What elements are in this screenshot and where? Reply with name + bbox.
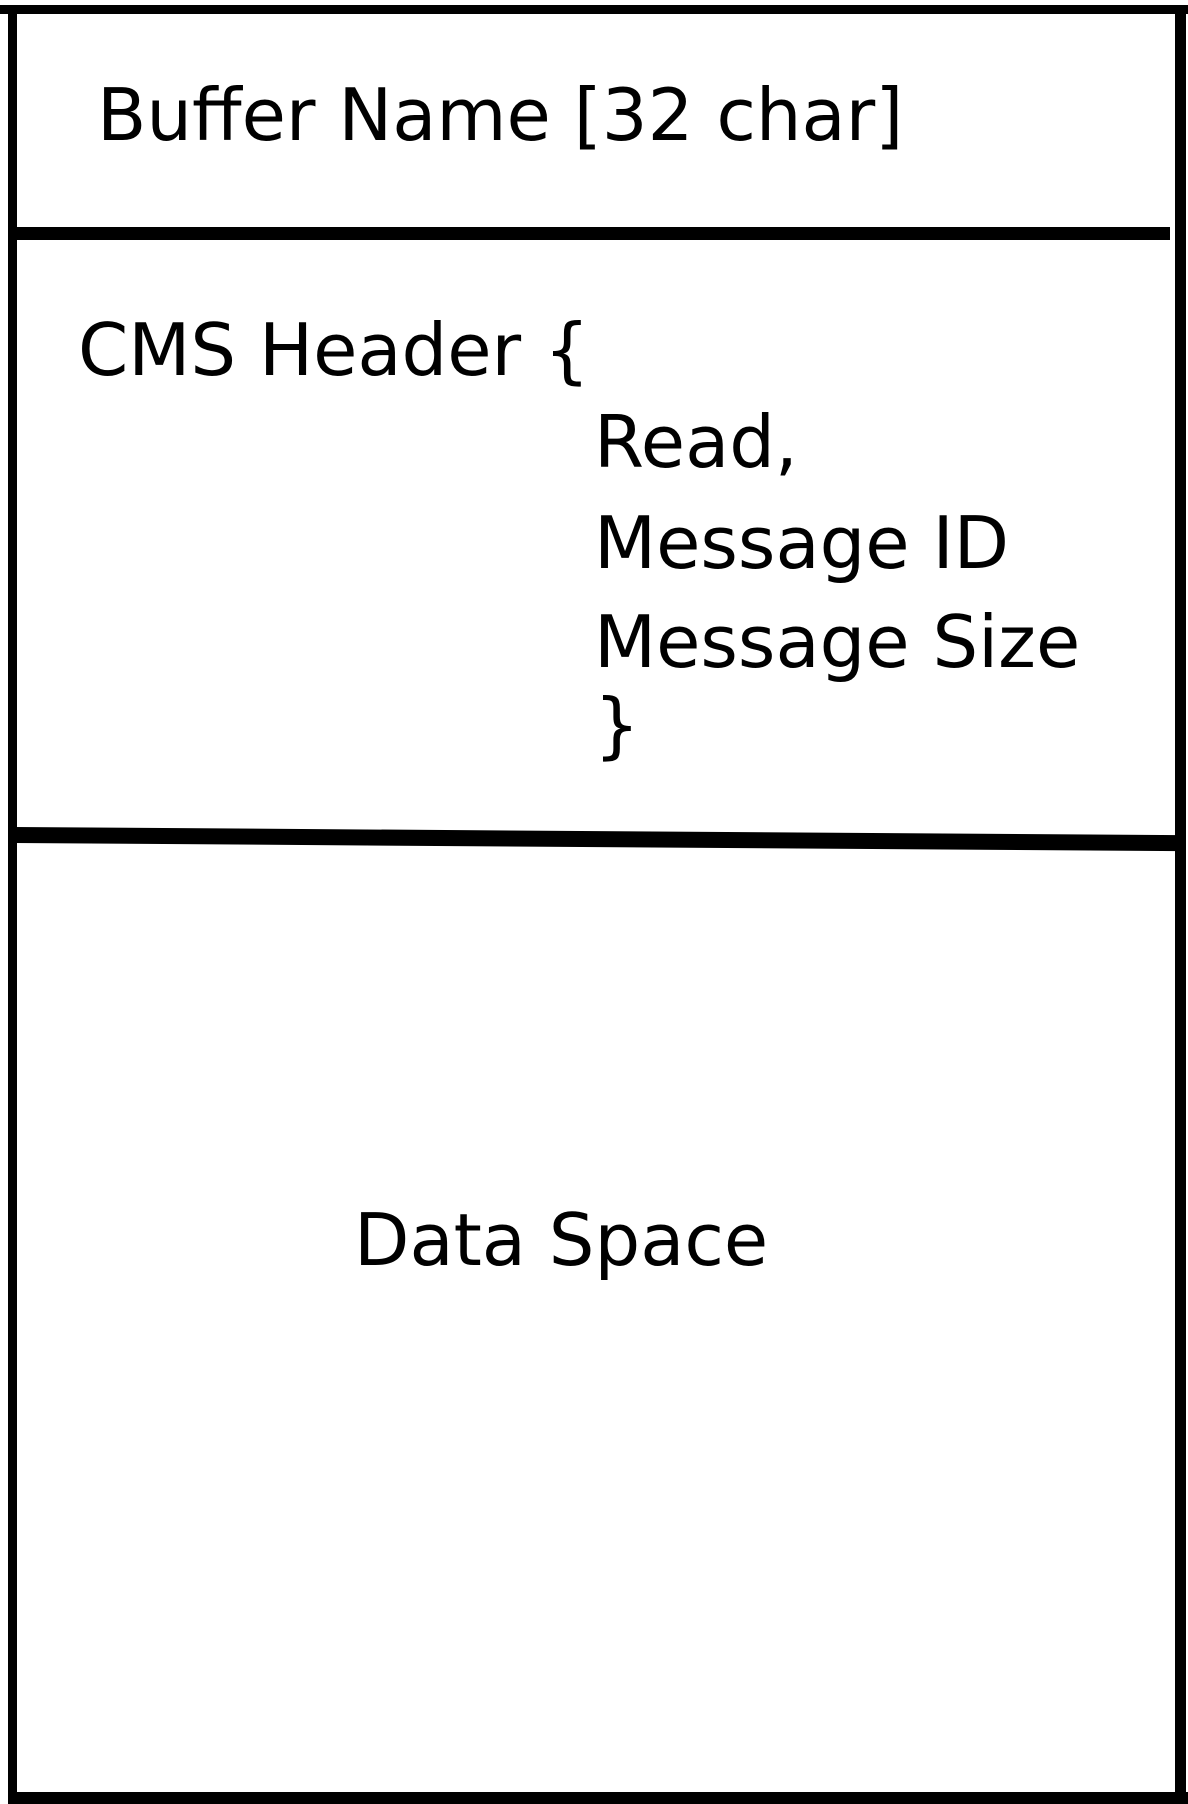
frame-top-edge [0, 5, 1188, 14]
cms-field-message-size: Message Size [594, 606, 1080, 678]
cms-field-message-id: Message ID [594, 507, 1009, 579]
frame-right-edge [1175, 12, 1186, 1804]
cms-header-label: CMS Header { [78, 314, 590, 386]
cms-field-read: Read, [594, 406, 798, 478]
buffer-layout-diagram: Buffer Name [32 char] CMS Header { Read,… [0, 0, 1188, 1804]
section-divider-top [14, 227, 1170, 240]
cms-header-close-brace: } [594, 689, 640, 761]
frame-left-edge [8, 5, 17, 1803]
data-space-label: Data Space [354, 1204, 768, 1276]
buffer-name-label: Buffer Name [32 char] [97, 79, 903, 151]
section-divider-bottom [14, 827, 1180, 851]
frame-bottom-edge [8, 1792, 1188, 1804]
